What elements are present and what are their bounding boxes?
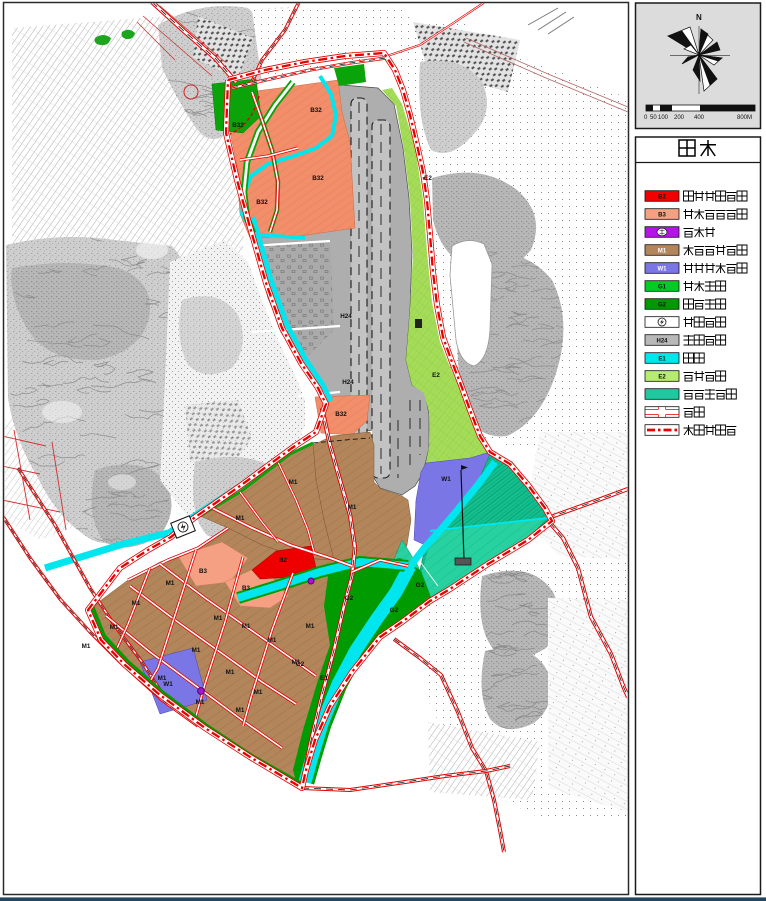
svg-text:200: 200 [674, 115, 685, 121]
svg-text:G2: G2 [658, 302, 667, 308]
svg-text:G2: G2 [390, 607, 399, 614]
svg-text:400: 400 [694, 115, 705, 121]
svg-text:M1: M1 [132, 600, 141, 607]
svg-text:B32: B32 [310, 107, 322, 114]
svg-text:E2: E2 [432, 372, 440, 379]
svg-text:M1: M1 [236, 515, 245, 522]
svg-text:E1: E1 [320, 675, 328, 682]
svg-text:H24: H24 [340, 313, 352, 320]
svg-text:B32: B32 [256, 199, 268, 206]
svg-text:M1: M1 [214, 615, 223, 622]
svg-text:E1: E1 [658, 356, 666, 362]
svg-text:B32: B32 [312, 175, 324, 182]
svg-text:M1: M1 [268, 637, 277, 644]
svg-text:M1: M1 [166, 580, 175, 587]
svg-text:B2: B2 [279, 557, 288, 564]
svg-text:W1: W1 [658, 266, 668, 272]
svg-text:M1: M1 [348, 504, 357, 511]
svg-text:M1: M1 [306, 623, 315, 630]
svg-text:M1: M1 [226, 669, 235, 676]
svg-text:800M: 800M [737, 115, 752, 121]
svg-text:B3: B3 [658, 212, 666, 218]
svg-text:G2: G2 [416, 582, 425, 589]
svg-text:M1: M1 [192, 647, 201, 654]
svg-text:W1: W1 [441, 476, 451, 483]
svg-text:B32: B32 [232, 122, 244, 129]
svg-text:M1: M1 [254, 689, 263, 696]
svg-text:M1: M1 [110, 624, 119, 631]
svg-text:100: 100 [658, 115, 669, 121]
svg-text:M1: M1 [236, 707, 245, 714]
svg-text:M1: M1 [82, 643, 91, 650]
svg-text:G1: G1 [658, 284, 667, 290]
svg-text:B2: B2 [658, 194, 666, 200]
svg-text:M1: M1 [289, 479, 298, 486]
svg-text:B32: B32 [335, 411, 347, 418]
svg-text:W1: W1 [163, 681, 173, 688]
svg-text:E2: E2 [658, 374, 666, 380]
svg-text:E2: E2 [424, 175, 432, 182]
svg-text:M1: M1 [158, 675, 167, 682]
svg-text:M1: M1 [242, 623, 251, 630]
svg-text:B3: B3 [242, 585, 251, 592]
svg-text:50: 50 [650, 115, 657, 121]
svg-text:B3: B3 [199, 568, 208, 575]
svg-text:H24: H24 [342, 379, 354, 386]
svg-text:G2: G2 [345, 595, 354, 602]
svg-text:H24: H24 [656, 338, 668, 344]
svg-text:M1: M1 [658, 248, 667, 254]
svg-text:M1: M1 [292, 659, 301, 666]
svg-text:M1: M1 [196, 699, 205, 706]
svg-text:N: N [696, 13, 702, 22]
